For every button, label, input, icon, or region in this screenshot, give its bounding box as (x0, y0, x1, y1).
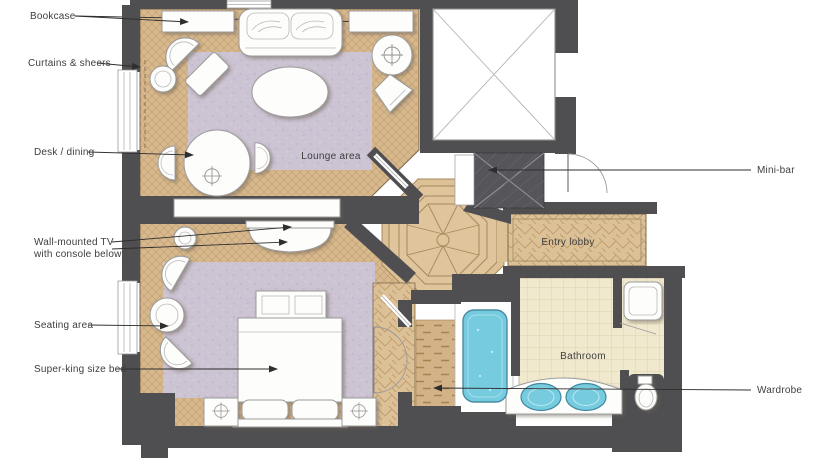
label-wall-tv-line2: with console below (33, 249, 122, 260)
basin-left (521, 384, 561, 411)
basin-right (566, 384, 606, 411)
vestibule-closet (455, 155, 474, 205)
label-wall-tv-line1: Wall-mounted TV (34, 237, 114, 248)
entry-door-arc (568, 154, 607, 193)
label-bathroom: Bathroom (560, 351, 606, 362)
label-super-king-bed: Super-king size bed (34, 364, 126, 375)
lounge-console (174, 199, 340, 217)
floor-plan-drawing: Bookcase Curtains & sheers Desk / dining… (0, 0, 840, 460)
wardrobe-shelving (416, 320, 458, 408)
sofa (239, 9, 342, 56)
label-wardrobe: Wardrobe (757, 385, 802, 396)
lounge-window (118, 70, 137, 152)
bookcase-right (349, 11, 413, 32)
label-desk-dining: Desk / dining (34, 147, 94, 158)
label-bookcase: Bookcase (30, 11, 76, 22)
shower (624, 282, 662, 320)
label-lounge-area: Lounge area (301, 151, 361, 162)
service-shaft (433, 9, 555, 140)
pillow-right (292, 400, 338, 420)
bedroom-side-table (150, 298, 184, 332)
side-table (150, 66, 176, 92)
bedroom-window (118, 281, 137, 354)
coffee-table (252, 67, 328, 117)
label-seating-area: Seating area (34, 320, 93, 331)
dining-table (184, 130, 250, 196)
label-entry-lobby: Entry lobby (541, 237, 594, 248)
label-curtains: Curtains & sheers (28, 58, 111, 69)
label-minibar: Mini-bar (757, 165, 795, 176)
headboard (233, 419, 347, 427)
bed-bench (256, 291, 326, 319)
pillow-left (242, 400, 288, 420)
mini-bar-unit (474, 153, 544, 208)
floor-plan: Bookcase Curtains & sheers Desk / dining… (0, 0, 840, 460)
